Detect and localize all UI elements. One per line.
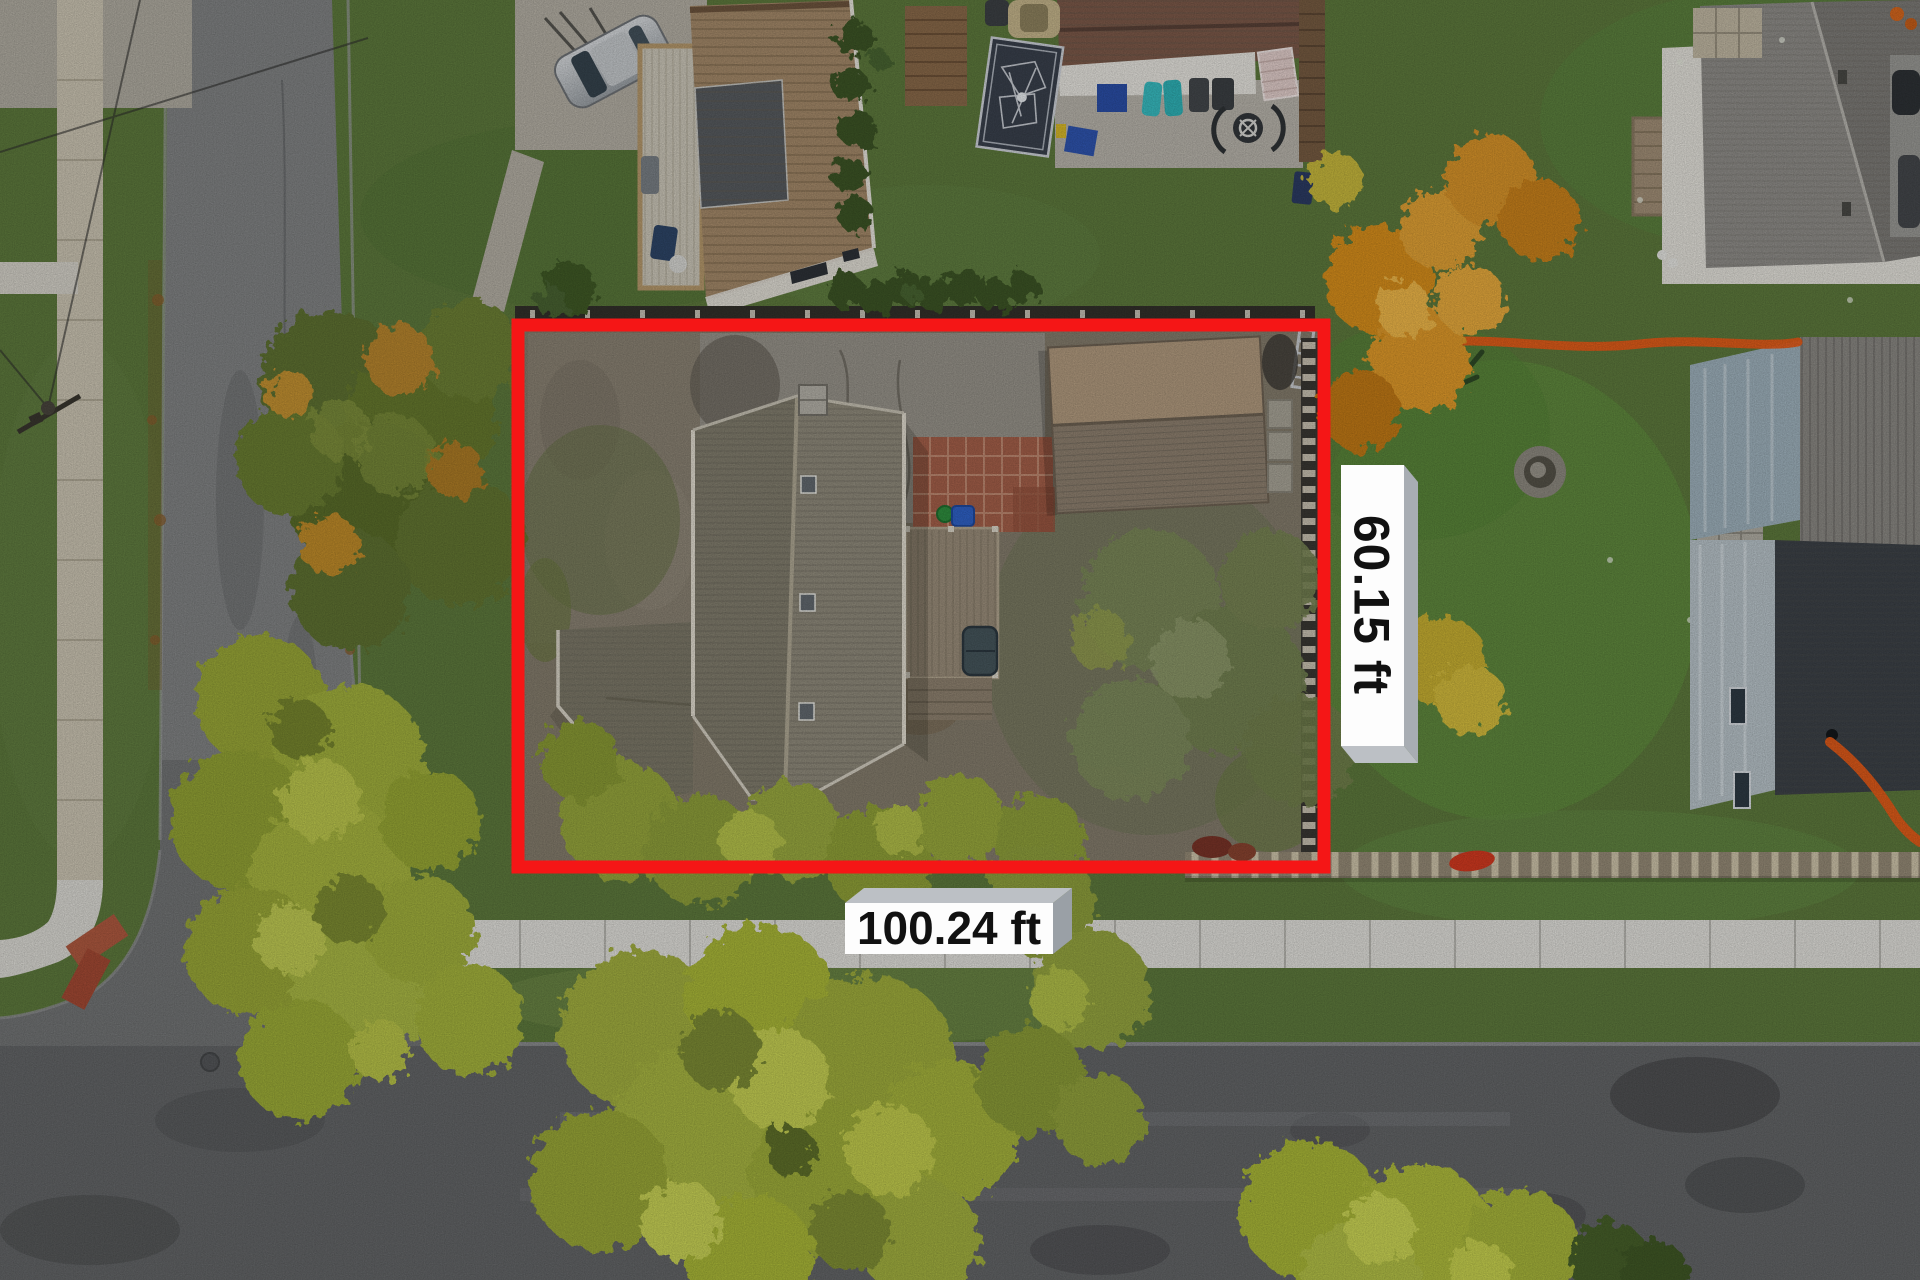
aerial-photo-canvas: 60.15 ft 100.24 ft [0, 0, 1920, 1280]
lot-depth-label: 60.15 ft [1341, 465, 1418, 763]
lot-depth-text: 60.15 ft [1344, 515, 1400, 695]
lot-frontage-label: 100.24 ft [845, 888, 1072, 954]
grain-overlay [0, 0, 1920, 1280]
aerial-photo: 60.15 ft 100.24 ft [0, 0, 1920, 1280]
lot-frontage-text: 100.24 ft [857, 902, 1041, 954]
